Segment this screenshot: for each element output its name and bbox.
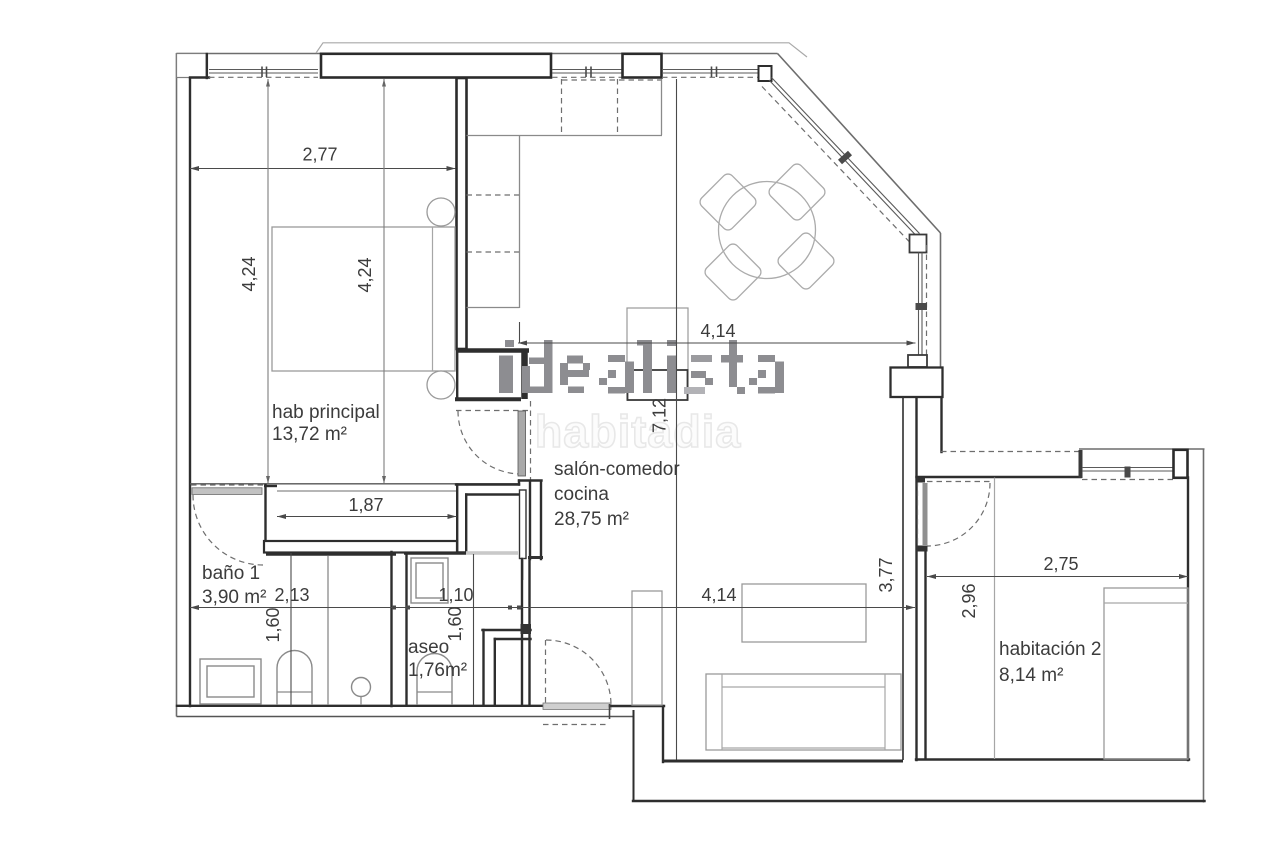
svg-text:1,87: 1,87 — [348, 495, 383, 515]
svg-text:1,76m²: 1,76m² — [408, 660, 467, 681]
svg-text:28,75 m²: 28,75 m² — [554, 509, 629, 530]
svg-text:2,13: 2,13 — [274, 585, 309, 605]
svg-text:3,77: 3,77 — [876, 557, 896, 592]
svg-text:aseo: aseo — [408, 637, 449, 658]
svg-text:hab principal: hab principal — [272, 402, 380, 423]
svg-text:salón-comedor: salón-comedor — [554, 459, 680, 480]
svg-text:1,10: 1,10 — [438, 585, 473, 605]
svg-text:2,75: 2,75 — [1043, 554, 1078, 574]
svg-text:8,14 m²: 8,14 m² — [999, 665, 1063, 686]
svg-text:7,12: 7,12 — [650, 398, 670, 433]
svg-text:4,24: 4,24 — [355, 257, 375, 292]
svg-text:4,14: 4,14 — [701, 585, 736, 605]
svg-text:2,77: 2,77 — [302, 145, 337, 165]
svg-text:2,96: 2,96 — [959, 583, 979, 618]
svg-text:habitación 2: habitación 2 — [999, 639, 1101, 660]
svg-text:baño 1: baño 1 — [202, 563, 260, 584]
svg-text:3,90 m²: 3,90 m² — [202, 587, 266, 608]
svg-text:cocina: cocina — [554, 484, 609, 505]
svg-text:13,72 m²: 13,72 m² — [272, 424, 347, 445]
svg-text:4,24: 4,24 — [239, 256, 259, 291]
svg-text:habitadia: habitadia — [535, 406, 742, 457]
svg-text:1,60: 1,60 — [263, 607, 283, 642]
svg-text:4,14: 4,14 — [700, 321, 735, 341]
